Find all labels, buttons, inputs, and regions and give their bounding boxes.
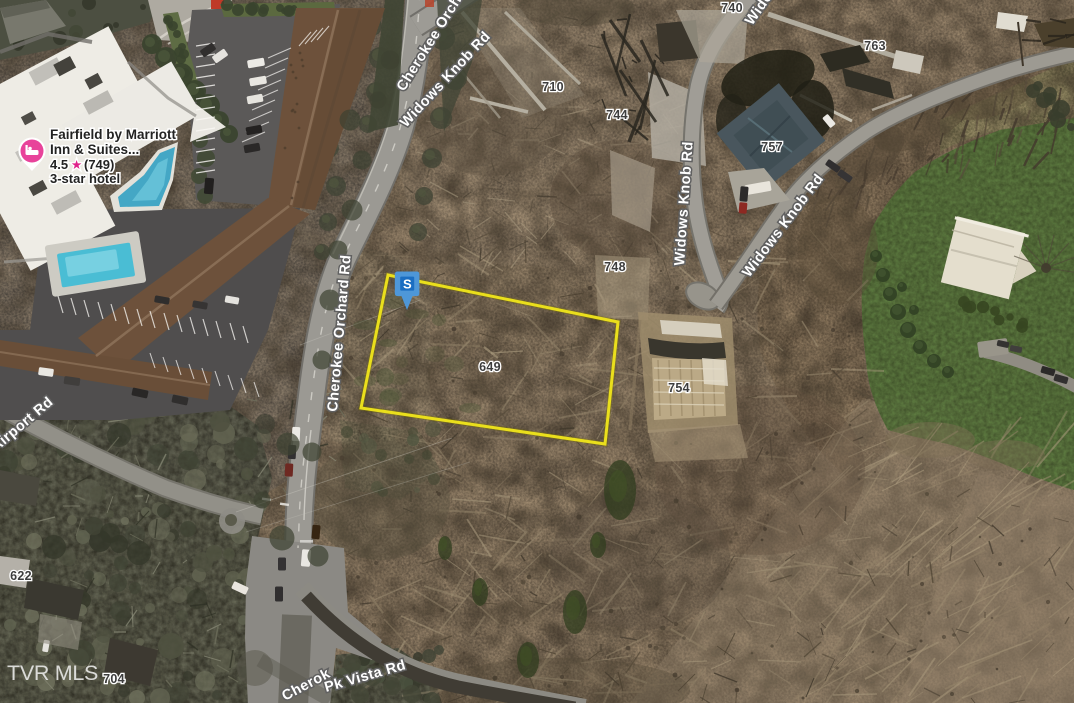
svg-text:Fairfield by Marriott: Fairfield by Marriott bbox=[50, 127, 177, 142]
svg-text:(749): (749) bbox=[84, 157, 114, 172]
svg-text:710: 710 bbox=[542, 80, 564, 94]
svg-text:★: ★ bbox=[71, 158, 82, 172]
svg-text:704: 704 bbox=[103, 672, 125, 686]
svg-text:748: 748 bbox=[604, 260, 626, 274]
svg-text:740: 740 bbox=[721, 1, 743, 15]
svg-text:TVR MLS: TVR MLS bbox=[7, 661, 98, 685]
svg-text:763: 763 bbox=[864, 39, 886, 53]
svg-text:757: 757 bbox=[761, 140, 783, 154]
svg-text:Inn & Suites...: Inn & Suites... bbox=[50, 142, 139, 157]
svg-text:649: 649 bbox=[479, 360, 501, 374]
svg-text:4.5: 4.5 bbox=[50, 157, 68, 172]
svg-text:754: 754 bbox=[668, 381, 690, 395]
svg-text:S: S bbox=[403, 277, 412, 292]
svg-text:622: 622 bbox=[10, 569, 32, 583]
svg-text:744: 744 bbox=[606, 108, 628, 122]
svg-text:3-star hotel: 3-star hotel bbox=[50, 171, 120, 186]
